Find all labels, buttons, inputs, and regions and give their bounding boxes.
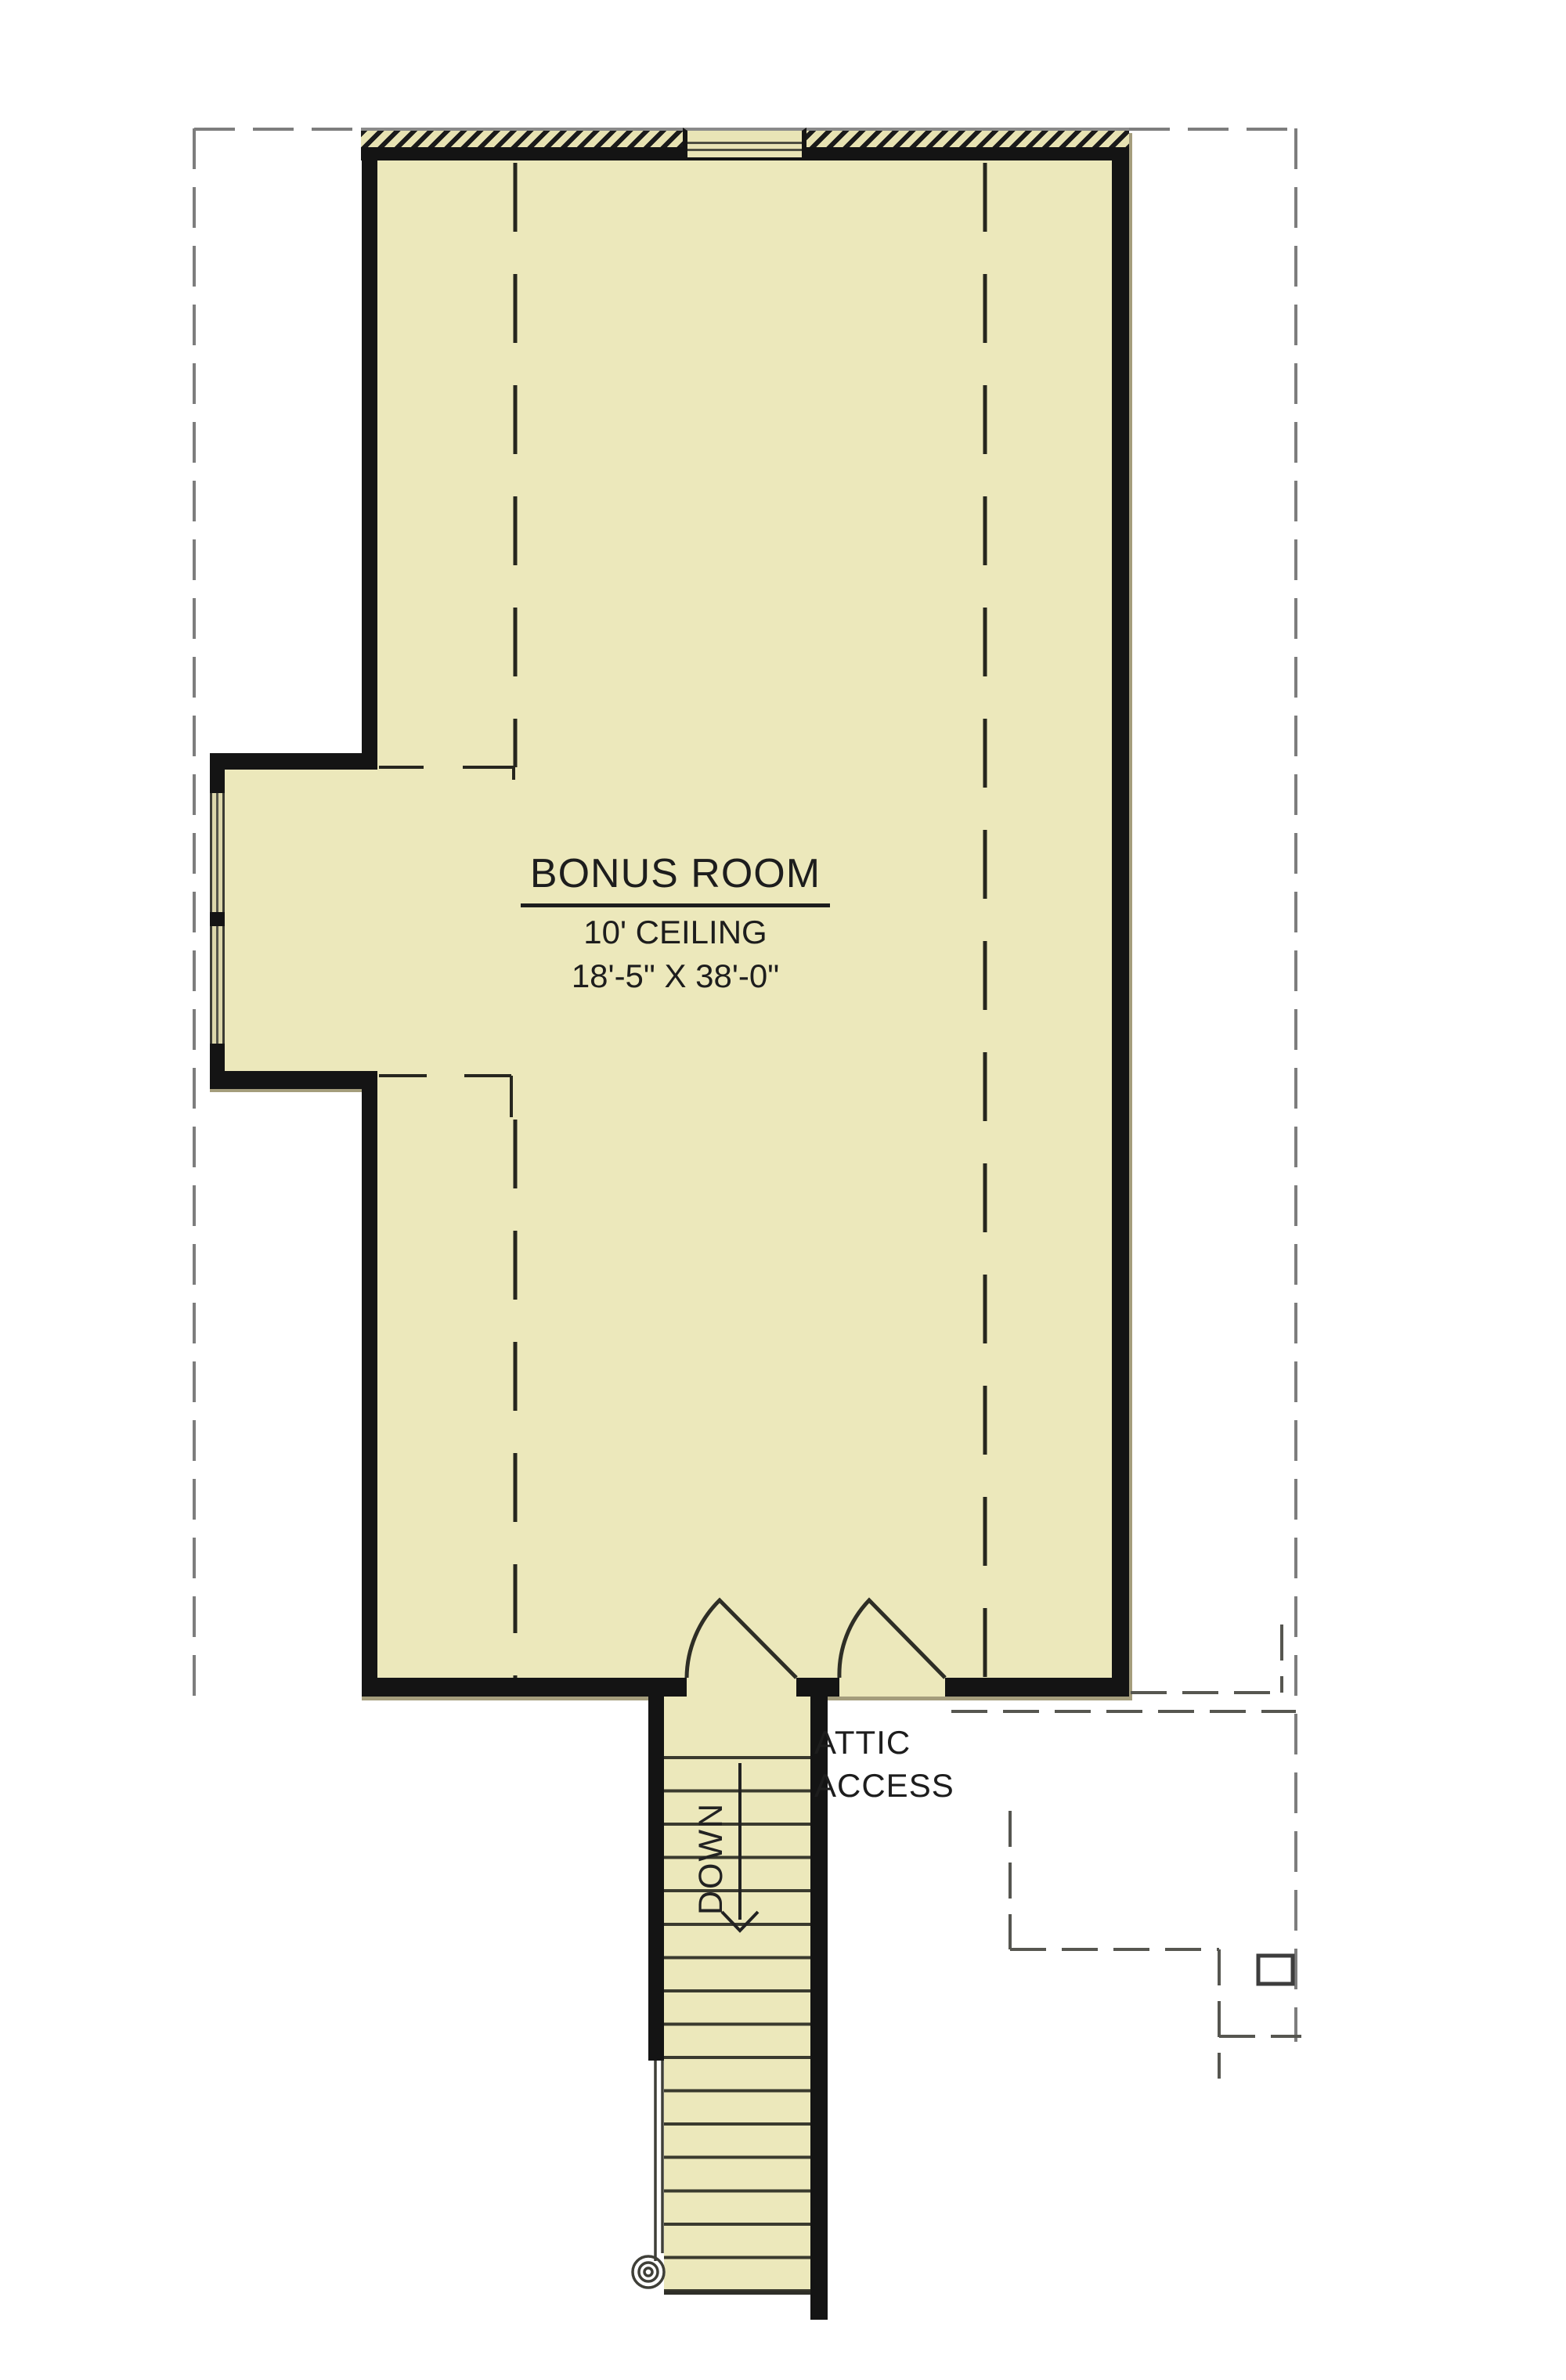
room-dimensions: 18'-5" X 38'-0" [478,957,873,995]
room-title: BONUS ROOM [521,850,830,907]
attic-access-line2: ACCESS [814,1764,954,1807]
roof-detail-lines [951,1625,1301,2079]
double-door-swings [687,1600,945,1678]
plan-linework [0,0,1566,2380]
attic-access-line1: ATTIC [814,1721,954,1764]
room-ceiling-note: 10' CEILING [478,914,873,951]
roof-detail-square [1258,1956,1293,1984]
stair-handrail [633,2061,664,2288]
roof-overhang-outline [194,128,1296,2042]
stairs-down-label: DOWN [692,1802,731,1915]
room-label-block: BONUS ROOM 10' CEILING 18'-5" X 38'-0" [478,850,873,995]
attic-access-label: ATTIC ACCESS [814,1721,954,1808]
floor-plan: BONUS ROOM 10' CEILING 18'-5" X 38'-0" A… [0,0,1566,2380]
